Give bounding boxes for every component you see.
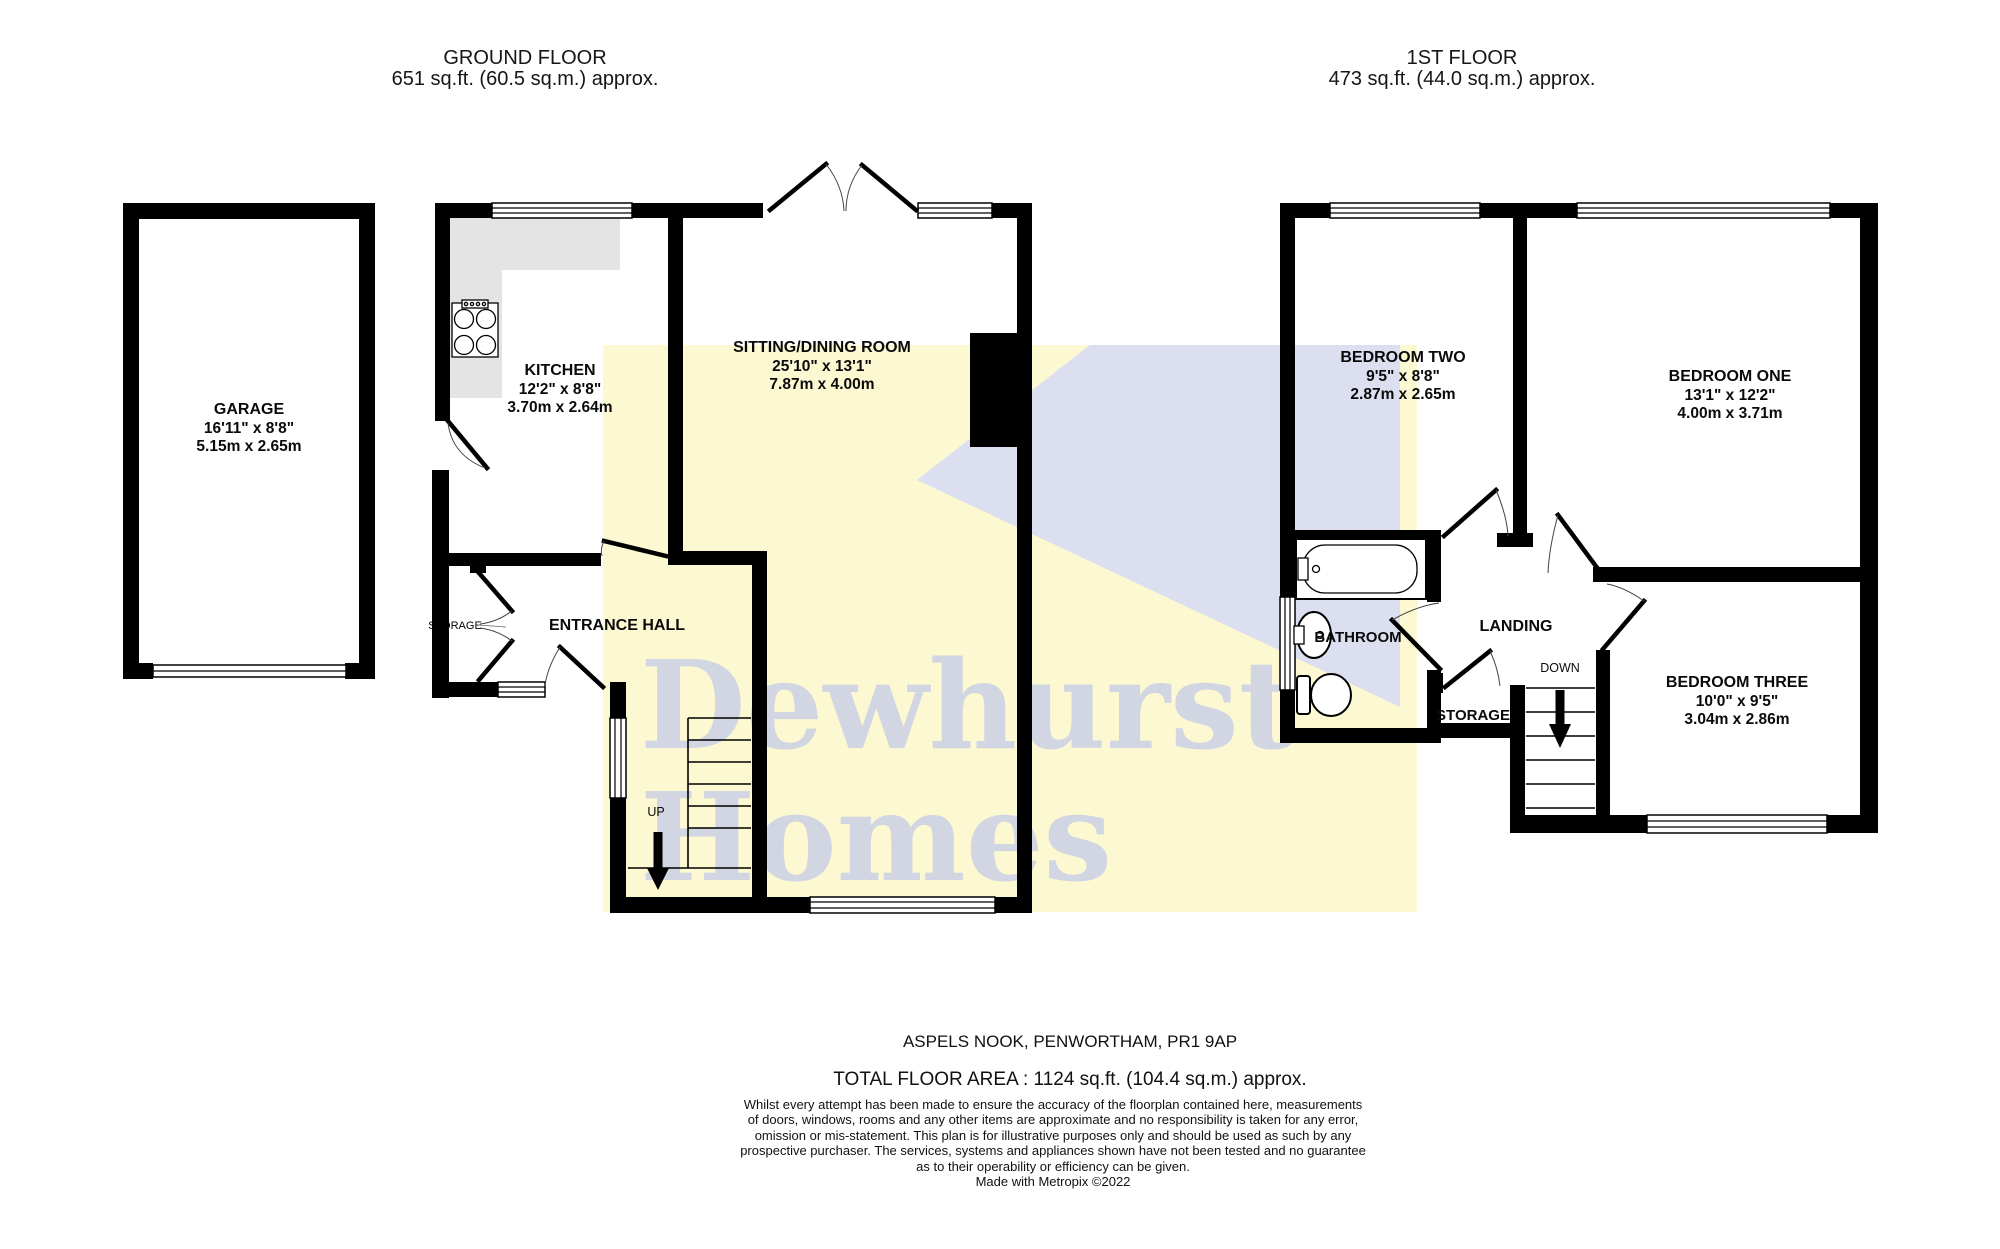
wall-segment xyxy=(632,203,763,218)
room-label-bedroom-two: BEDROOM TWO 9'5" x 8'8" 2.87m x 2.65m xyxy=(1340,349,1465,405)
wall-segment xyxy=(123,203,139,679)
fixture-outline xyxy=(455,310,474,329)
label-leader-line xyxy=(478,625,506,627)
wall-segment xyxy=(432,470,449,698)
total-floor-area: TOTAL FLOOR AREA : 1124 sq.ft. (104.4 sq… xyxy=(833,1069,1306,1091)
ground-floor-area: 651 sq.ft. (60.5 sq.m.) approx. xyxy=(392,69,659,90)
wall-segment xyxy=(1510,685,1525,833)
fixture-outline xyxy=(455,336,474,355)
door-swing-arc xyxy=(545,647,560,686)
room-label-bedroom-one: BEDROOM ONE 13'1" x 12'2" 4.00m x 3.71m xyxy=(1669,368,1792,424)
room-label-bathroom: BATHROOM xyxy=(1314,629,1401,648)
back-door xyxy=(448,421,487,468)
front-door-sidelight xyxy=(498,682,545,697)
room-label-landing: LANDING xyxy=(1480,618,1553,637)
window-glazing xyxy=(1280,597,1295,690)
bedroom-three-window xyxy=(1647,815,1827,833)
stairs-up-label: UP xyxy=(647,803,664,822)
door-swing-arc xyxy=(480,611,512,624)
window-glazing xyxy=(810,897,995,913)
window-glazing xyxy=(918,203,992,218)
wall-segment xyxy=(610,798,626,913)
door-swing-arc xyxy=(1548,515,1558,573)
wall-segment xyxy=(1280,728,1428,743)
room-label-storage: STORAGE xyxy=(1436,707,1510,726)
fixture-outline xyxy=(476,302,479,305)
bathtub-icon xyxy=(1296,539,1426,599)
fixture-outline xyxy=(1311,674,1351,716)
wall-segment xyxy=(1860,203,1878,833)
patio-door-left xyxy=(770,164,826,210)
window-glazing xyxy=(492,203,632,218)
floorplan-graphic: Dewhurst Homes STORAGE xyxy=(0,0,2000,1249)
bathroom-window xyxy=(1280,597,1295,690)
fixture-outline xyxy=(477,336,496,355)
wall-segment xyxy=(123,663,153,679)
toilet-icon xyxy=(1297,674,1351,716)
hall-closet-door-lower xyxy=(479,641,512,680)
bedroom-three-door xyxy=(1603,601,1644,649)
wall-segment xyxy=(432,682,498,697)
fixture-outline xyxy=(1298,558,1308,580)
fixture-outline xyxy=(464,302,467,305)
wall-segment xyxy=(610,897,767,913)
staircase-down xyxy=(1526,688,1595,808)
wall-segment xyxy=(345,663,375,679)
bedroom-two-window xyxy=(1330,203,1480,218)
watermark-text-line1: Dewhurst xyxy=(640,633,1295,777)
wall-segment xyxy=(1513,218,1527,547)
wall-segment xyxy=(123,203,375,219)
metropix-credit: Made with Metropix ©2022 xyxy=(740,1174,1366,1189)
fixture-outline xyxy=(482,302,485,305)
wall-segment xyxy=(1480,203,1577,218)
fixture-outline xyxy=(470,302,473,305)
chimney-breast xyxy=(970,333,1017,447)
disclaimer-line: as to their operability or efficiency ca… xyxy=(740,1159,1366,1174)
stove-icon xyxy=(452,300,498,357)
wall-segment xyxy=(359,203,375,679)
wall-segment xyxy=(995,897,1032,913)
hall-closet-door-upper xyxy=(479,573,512,611)
watermark-text-line2: Homes xyxy=(640,765,1112,909)
fixture-outline xyxy=(1294,626,1304,644)
wall-segment xyxy=(1280,203,1295,597)
bedroom-one-door xyxy=(1558,515,1601,573)
window-glazing xyxy=(1577,203,1830,218)
first-floor-title: 1ST FLOOR 473 sq.ft. (44.0 sq.m.) approx… xyxy=(1329,48,1596,90)
wall-segment xyxy=(767,897,811,913)
first-floor-area: 473 sq.ft. (44.0 sq.m.) approx. xyxy=(1329,69,1596,90)
property-address: ASPELS NOOK, PENWORTHAM, PR1 9AP xyxy=(903,1032,1237,1052)
disclaimer-line: omission or mis-statement. This plan is … xyxy=(740,1128,1366,1143)
wall-segment xyxy=(668,218,683,551)
fixture-outline xyxy=(477,310,496,329)
disclaimer-line: prospective purchaser. The services, sys… xyxy=(740,1143,1366,1158)
storage-door xyxy=(1445,651,1490,687)
door-swing-arc xyxy=(826,164,844,211)
disclaimer-line: of doors, windows, rooms and any other i… xyxy=(740,1112,1366,1127)
wall-segment xyxy=(1827,815,1878,833)
front-door xyxy=(560,647,603,687)
stairs-down-label: DOWN xyxy=(1540,659,1580,678)
room-label-entrance-hall: ENTRANCE HALL xyxy=(549,617,685,636)
wall-segment xyxy=(610,682,626,720)
window-glazing xyxy=(1647,815,1827,833)
fixture-outline xyxy=(1313,566,1320,573)
disclaimer: Whilst every attempt has been made to en… xyxy=(740,1097,1366,1189)
room-label-garage: GARAGE 16'11" x 8'8" 5.15m x 2.65m xyxy=(196,401,301,457)
sitting-room-top-window xyxy=(918,203,992,218)
wall-segment xyxy=(1596,650,1610,833)
bedroom-one-window xyxy=(1577,203,1830,218)
wall-segment xyxy=(1497,533,1533,547)
wall-segment xyxy=(1017,203,1032,913)
wall-segment xyxy=(435,203,450,421)
hall-side-window xyxy=(610,718,626,798)
door-swing-arc xyxy=(480,628,512,641)
wall-segment xyxy=(1593,567,1860,582)
bedroom-two-door xyxy=(1444,490,1496,536)
disclaimer-line: Whilst every attempt has been made to en… xyxy=(740,1097,1366,1112)
sitting-room-bottom-window xyxy=(810,897,995,913)
door-swing-arc xyxy=(1607,584,1644,601)
ground-floor-name: GROUND FLOOR xyxy=(392,48,659,69)
kitchen-window xyxy=(492,203,632,218)
garage-door xyxy=(153,665,346,677)
room-label-bedroom-three: BEDROOM THREE 10'0" x 9'5" 3.04m x 2.86m xyxy=(1666,674,1808,730)
floorplan-page: Dewhurst Homes STORAGE xyxy=(0,0,2000,1249)
wall-segment xyxy=(1428,673,1443,693)
door-swing-arc xyxy=(846,165,862,211)
door-swing-arc xyxy=(1496,490,1508,536)
window-glazing xyxy=(498,682,545,697)
patio-door-right xyxy=(862,165,916,210)
room-label-sitting-dining: SITTING/DINING ROOM 25'10" x 13'1" 7.87m… xyxy=(733,339,911,395)
down-arrow-icon xyxy=(1549,690,1571,748)
window-glazing xyxy=(1330,203,1480,218)
fixture-outline xyxy=(1297,676,1310,714)
ground-floor-title: GROUND FLOOR 651 sq.ft. (60.5 sq.m.) app… xyxy=(392,48,659,90)
door-swing-arc xyxy=(1490,651,1500,686)
wall-segment xyxy=(752,551,767,913)
wall-segment xyxy=(1427,530,1441,602)
room-label-kitchen: KITCHEN 12'2" x 8'8" 3.70m x 2.64m xyxy=(507,362,612,418)
wall-segment xyxy=(1600,815,1647,833)
first-floor-name: 1ST FLOOR xyxy=(1329,48,1596,69)
window-glazing xyxy=(610,718,626,798)
